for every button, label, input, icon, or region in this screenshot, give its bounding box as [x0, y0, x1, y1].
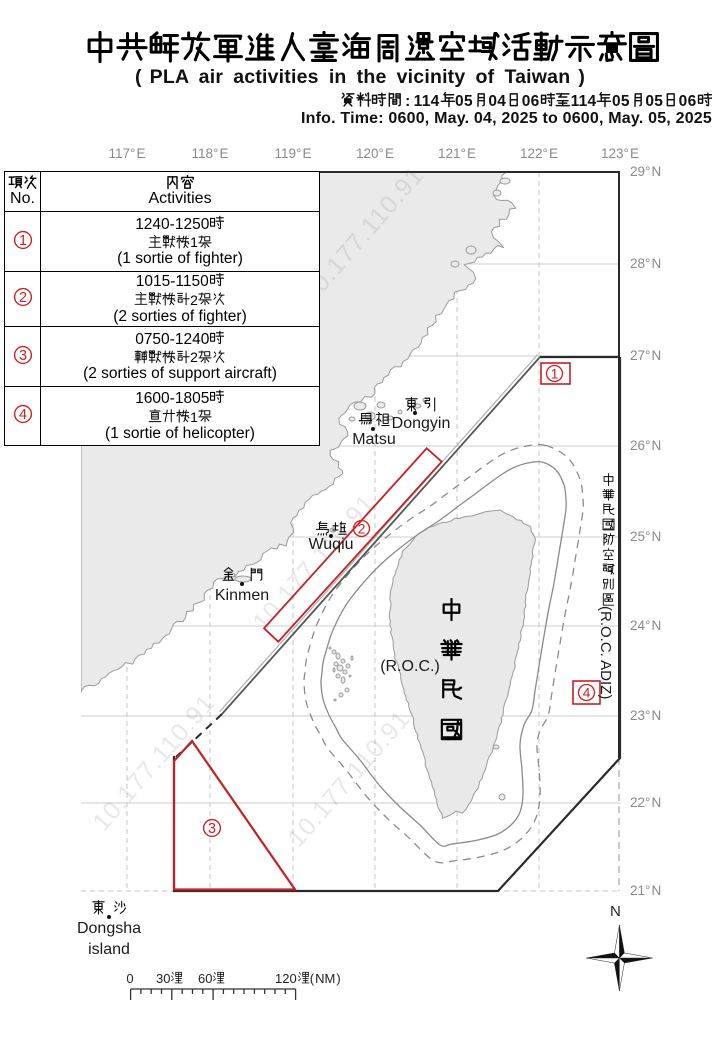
svg-text:10.177.110.91: 10.177.110.91 — [87, 689, 220, 836]
svg-text:3: 3 — [208, 821, 216, 837]
svg-text:10.177.110.91: 10.177.110.91 — [282, 705, 415, 852]
svg-text:1: 1 — [551, 366, 559, 381]
svg-text:3: 3 — [18, 348, 26, 364]
svg-text:4: 4 — [18, 408, 26, 424]
svg-text:4: 4 — [583, 685, 591, 700]
svg-text:1: 1 — [18, 233, 26, 249]
svg-text:2: 2 — [358, 521, 366, 536]
svg-text:2: 2 — [18, 291, 26, 307]
